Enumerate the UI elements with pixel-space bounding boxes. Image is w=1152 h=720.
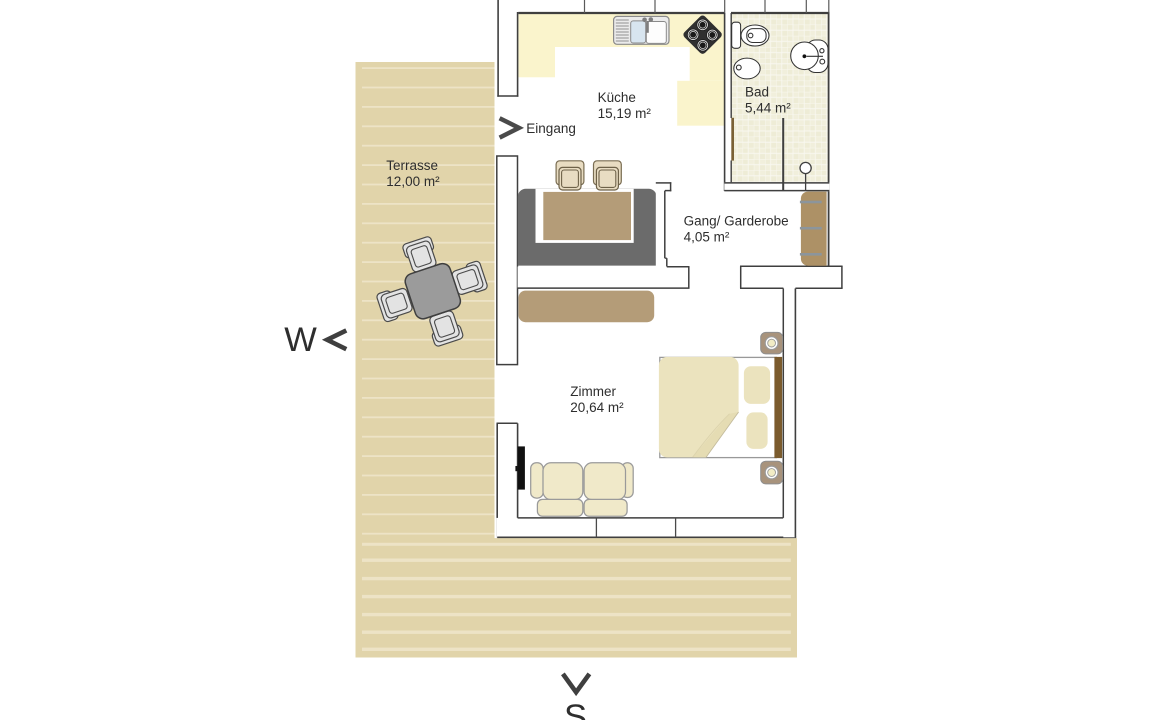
svg-text:Bad: Bad [745, 84, 769, 99]
svg-text:5,44 m²: 5,44 m² [745, 101, 791, 116]
svg-text:Eingang: Eingang [526, 121, 576, 136]
svg-text:15,19 m²: 15,19 m² [598, 106, 652, 121]
svg-text:4,05 m²: 4,05 m² [684, 230, 730, 245]
svg-text:12,00 m²: 12,00 m² [386, 174, 440, 189]
svg-text:S: S [564, 698, 587, 720]
svg-text:Terrasse: Terrasse [386, 158, 438, 173]
svg-text:W: W [284, 321, 317, 359]
svg-text:20,64 m²: 20,64 m² [570, 400, 624, 415]
svg-text:Gang/ Garderobe: Gang/ Garderobe [684, 214, 789, 229]
svg-text:Küche: Küche [598, 90, 636, 105]
svg-text:Zimmer: Zimmer [570, 384, 616, 399]
